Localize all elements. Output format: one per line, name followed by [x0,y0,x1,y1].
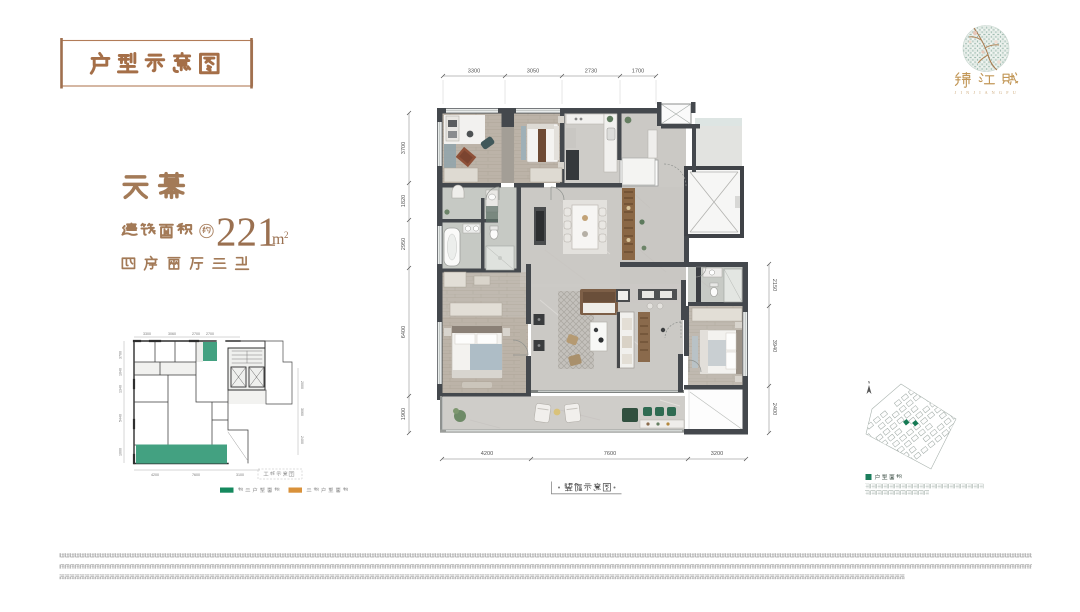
svg-text:221: 221 [216,209,278,255]
svg-text:4200: 4200 [481,451,493,457]
svg-text:3050: 3050 [527,69,539,75]
svg-text:2700: 2700 [206,332,214,336]
svg-text:2730: 2730 [585,69,597,75]
svg-text:2400: 2400 [300,436,304,444]
svg-text:2950: 2950 [401,238,407,250]
svg-text:1820: 1820 [401,195,407,207]
svg-text:7600: 7600 [604,451,616,457]
svg-text:3300: 3300 [143,332,151,336]
svg-text:4200: 4200 [151,473,159,477]
svg-text:1000: 1000 [119,448,123,456]
svg-text:7600: 7600 [192,473,200,477]
svg-text:2400: 2400 [771,403,777,415]
svg-text:1340: 1340 [119,385,123,393]
svg-text:3060: 3060 [300,408,304,416]
svg-text:3100: 3100 [236,473,244,477]
svg-text:1900: 1900 [401,408,407,420]
svg-text:3940: 3940 [771,340,777,352]
svg-text:2150: 2150 [771,279,777,291]
svg-text:2: 2 [284,230,289,240]
svg-text:J I N J I A N G F U: J I N J I A N G F U [955,90,1018,95]
svg-text:3700: 3700 [401,142,407,154]
svg-text:3200: 3200 [711,451,723,457]
svg-text:5440: 5440 [119,414,123,422]
svg-text:2700: 2700 [192,332,200,336]
svg-text:3300: 3300 [468,69,480,75]
svg-text:1700: 1700 [632,69,644,75]
svg-text:2000: 2000 [300,381,304,389]
svg-text:3060: 3060 [168,332,176,336]
svg-text:6400: 6400 [401,326,407,338]
svg-text:3700: 3700 [119,351,123,359]
svg-text:1040: 1040 [119,368,123,376]
